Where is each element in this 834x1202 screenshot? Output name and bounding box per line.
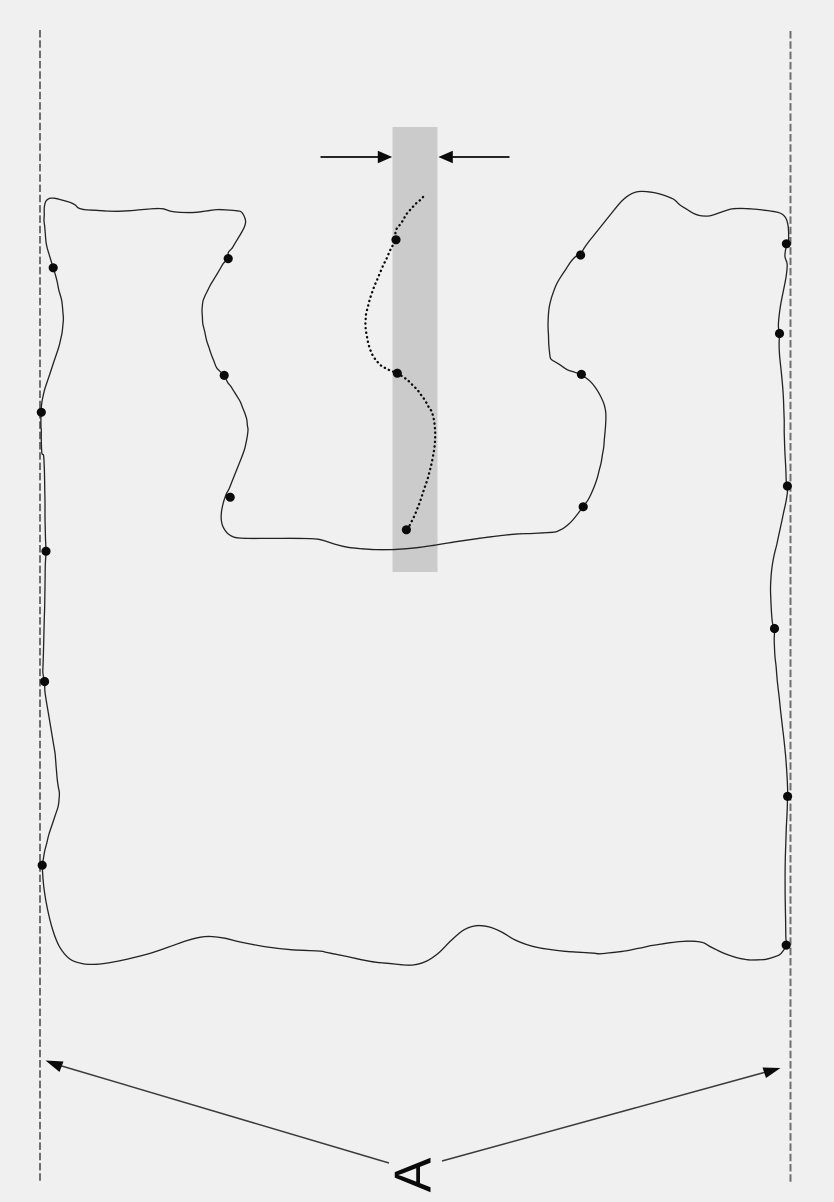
svg-text:A: A <box>385 1157 443 1192</box>
